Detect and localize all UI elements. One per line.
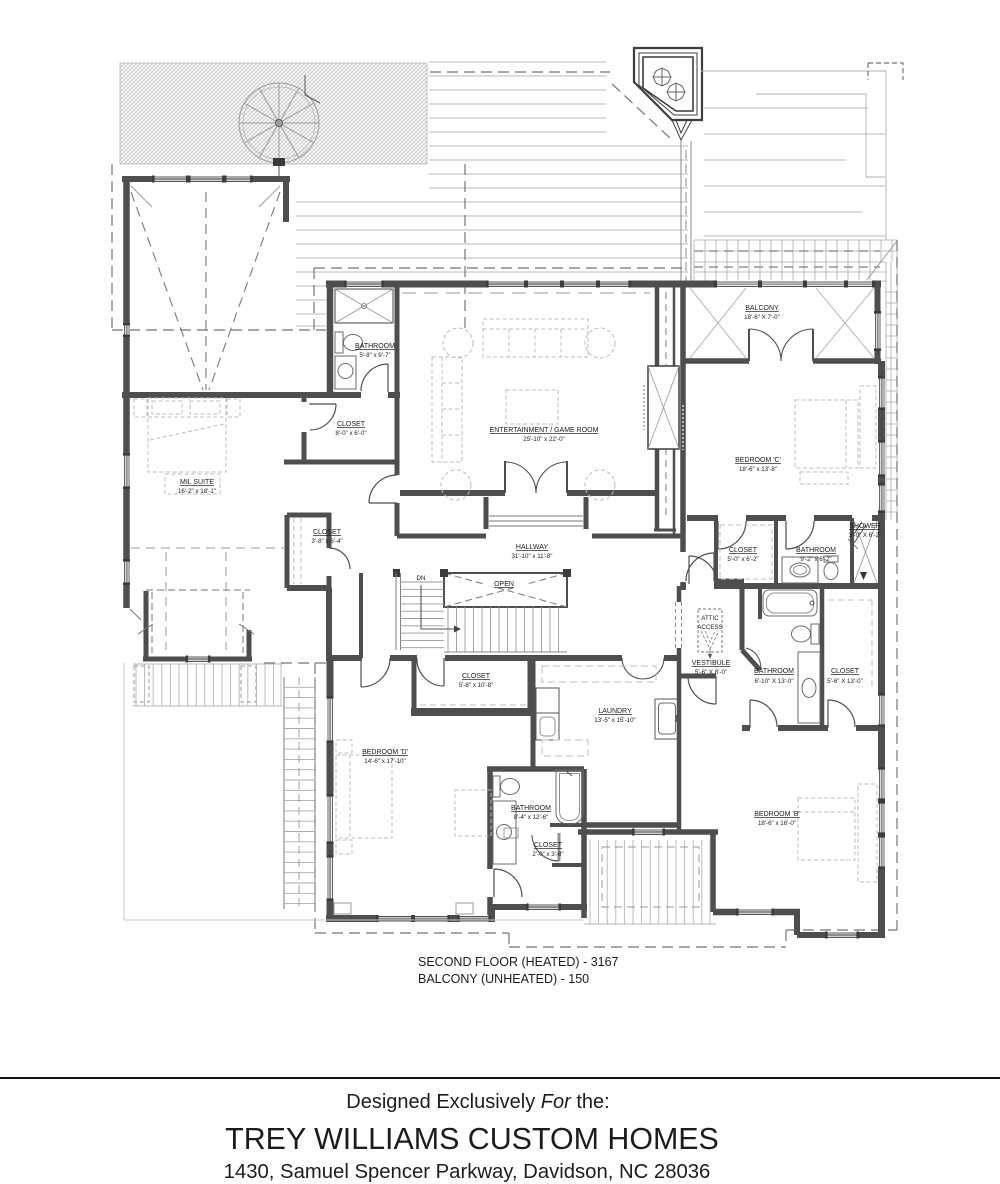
svg-text:BALCONY (UNHEATED) - 150: BALCONY (UNHEATED) - 150 bbox=[418, 972, 589, 986]
svg-text:BATHROOM: BATHROOM bbox=[796, 547, 836, 554]
svg-text:5'-6" X 8'-0": 5'-6" X 8'-0" bbox=[695, 669, 727, 676]
svg-text:CLOSET: CLOSET bbox=[831, 668, 860, 675]
svg-text:3'-8" x 6'-4": 3'-8" x 6'-4" bbox=[311, 538, 342, 545]
svg-text:13'-5" x 15'-10": 13'-5" x 15'-10" bbox=[594, 717, 636, 724]
svg-text:CLOSET: CLOSET bbox=[337, 421, 366, 428]
svg-text:CLOSET: CLOSET bbox=[534, 842, 563, 849]
svg-text:TREY WILLIAMS CUSTOM HOMES: TREY WILLIAMS CUSTOM HOMES bbox=[225, 1122, 719, 1156]
svg-text:BEDROOM 'C': BEDROOM 'C' bbox=[735, 457, 781, 464]
svg-text:OPEN: OPEN bbox=[494, 581, 514, 588]
svg-text:CLOSET: CLOSET bbox=[462, 673, 491, 680]
svg-text:VESTIBULE: VESTIBULE bbox=[692, 660, 731, 667]
svg-text:25'-10" x 22'-0": 25'-10" x 22'-0" bbox=[523, 436, 565, 443]
svg-text:BEDROOM 'D': BEDROOM 'D' bbox=[362, 749, 408, 756]
svg-text:6'-10" X 13'-0": 6'-10" X 13'-0" bbox=[754, 678, 793, 685]
svg-text:BALCONY: BALCONY bbox=[745, 305, 779, 312]
svg-text:31'-10" x 11'-8": 31'-10" x 11'-8" bbox=[511, 553, 552, 560]
svg-text:HALLWAY: HALLWAY bbox=[516, 544, 548, 551]
svg-text:SECOND FLOOR (HEATED) - 3167: SECOND FLOOR (HEATED) - 3167 bbox=[418, 955, 619, 969]
svg-text:5'-0" x 6'-2": 5'-0" x 6'-2" bbox=[727, 556, 758, 563]
svg-text:5'-8" x 10'-8": 5'-8" x 10'-8" bbox=[459, 682, 494, 689]
svg-text:MIL SUITE: MIL SUITE bbox=[180, 479, 214, 486]
svg-text:ATTIC: ATTIC bbox=[701, 615, 719, 622]
svg-text:8'-4" x 12'-6": 8'-4" x 12'-6" bbox=[514, 814, 549, 821]
svg-text:8'-0" x 6'-0": 8'-0" x 6'-0" bbox=[335, 430, 366, 437]
svg-text:DN: DN bbox=[417, 575, 426, 582]
svg-text:Designed Exclusively For the:: Designed Exclusively For the: bbox=[346, 1091, 609, 1113]
svg-text:CLOSET: CLOSET bbox=[313, 529, 342, 536]
svg-text:5'-6" X 13'-0": 5'-6" X 13'-0" bbox=[827, 678, 863, 685]
svg-text:3'-0" X 6'-2": 3'-0" X 6'-2" bbox=[849, 532, 881, 539]
svg-text:ACCESS: ACCESS bbox=[697, 624, 722, 631]
svg-text:SHOWER: SHOWER bbox=[849, 523, 881, 530]
svg-text:1430, Samuel Spencer Parkway,: 1430, Samuel Spencer Parkway, Davidson, … bbox=[224, 1161, 711, 1183]
svg-text:18'-6" x 13'-8": 18'-6" x 13'-8" bbox=[739, 466, 777, 473]
svg-text:16'-2" x 18'-1": 16'-2" x 18'-1" bbox=[178, 488, 216, 495]
svg-text:ENTERTAINMENT / GAME ROOM: ENTERTAINMENT / GAME ROOM bbox=[490, 427, 599, 434]
svg-text:14'-6" x 17'-10": 14'-6" x 17'-10" bbox=[364, 758, 406, 765]
svg-text:BEDROOM 'B': BEDROOM 'B' bbox=[754, 811, 799, 818]
svg-text:BATHROOM: BATHROOM bbox=[754, 668, 794, 675]
svg-text:BATHROOM: BATHROOM bbox=[355, 343, 395, 350]
svg-text:9'-2" x 6'-2": 9'-2" x 6'-2" bbox=[800, 556, 831, 563]
svg-text:18'-6" x 16'-0": 18'-6" x 16'-0" bbox=[758, 820, 796, 827]
svg-text:CLOSET: CLOSET bbox=[729, 547, 758, 554]
svg-text:18'-6" X 7'-0": 18'-6" X 7'-0" bbox=[744, 314, 780, 321]
svg-text:LAUNDRY: LAUNDRY bbox=[598, 708, 632, 715]
svg-text:BATHROOM: BATHROOM bbox=[511, 805, 551, 812]
svg-text:5'-8" x 9'-7": 5'-8" x 9'-7" bbox=[359, 352, 390, 359]
svg-text:2'-0" x 3'-8": 2'-0" x 3'-8" bbox=[532, 851, 563, 858]
